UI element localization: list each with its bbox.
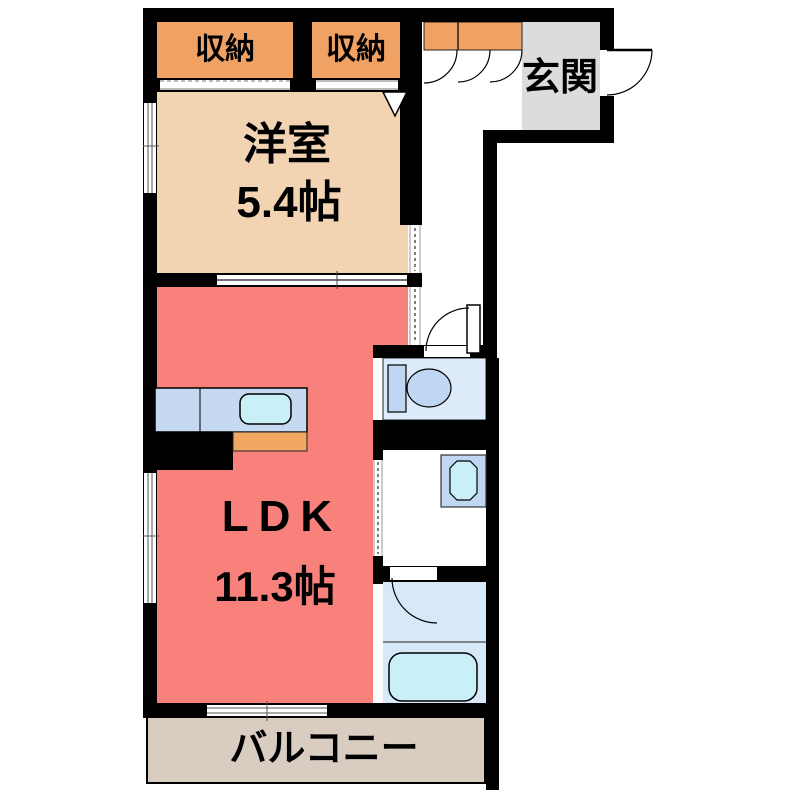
wall-top [143,8,614,22]
floor-plan-drawing [0,0,800,800]
bathtub [389,653,477,701]
wall-kitchen-block [143,430,233,470]
bath-door-opening [390,567,437,580]
stove [233,432,307,451]
wall-washroom-left-a [373,450,383,460]
closet-left-label: 収納 [195,35,255,65]
washbasin-sink [450,461,477,500]
wall-hall-left [400,8,422,225]
floor-plan: 収納 収納 玄関 洋室 5.4帖 LDK 11.3帖 バルコニー [0,0,800,800]
wall-wet-right [486,358,499,790]
wall-toilet-washroom [373,420,486,450]
toilet-door-leaf [467,305,480,353]
toilet-door-opening [424,346,470,357]
western-room-name: 洋室 [243,123,331,167]
entrance-label: 玄関 [522,59,598,97]
toilet-tank [388,365,406,412]
ldk-size: 11.3帖 [214,566,335,608]
kitchen-sink [240,394,291,424]
window-ldk-left [144,473,156,603]
shoe-cabinet [424,22,522,50]
balcony-label: バルコニー [229,730,418,768]
wall-entrance-bottom [483,130,614,143]
closet-right-label: 収納 [326,35,386,65]
entry-door-opening [600,50,614,96]
ldk-name: LDK [222,495,342,539]
window-western-left [144,103,156,193]
toilet-bowl [407,369,451,407]
western-room-size: 5.4帖 [236,181,341,225]
ldk-room-upper [157,285,408,345]
wall-corridor-right [483,130,497,358]
